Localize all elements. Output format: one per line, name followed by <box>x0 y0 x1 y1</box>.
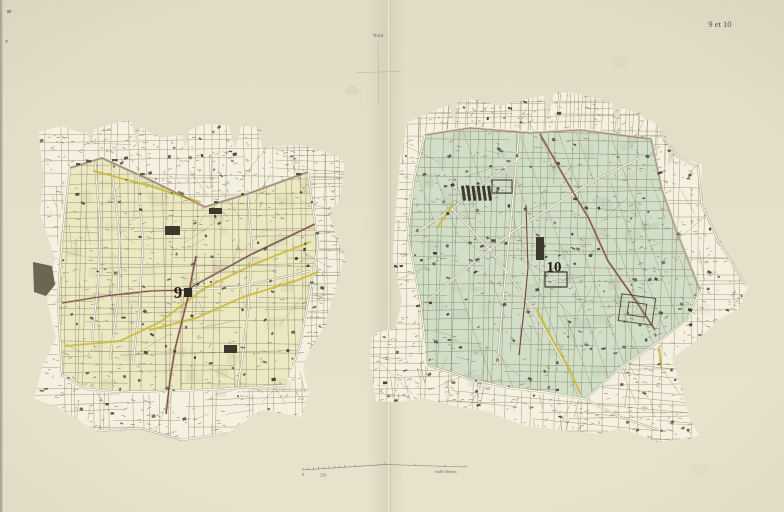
svg-text:mille Mètres: mille Mètres <box>435 469 457 474</box>
svg-text:10: 10 <box>547 260 562 276</box>
svg-text:0: 0 <box>302 472 304 477</box>
svg-text:Nord: Nord <box>373 34 384 39</box>
svg-text:9: 9 <box>174 283 183 302</box>
svg-text:9 et 10: 9 et 10 <box>708 19 731 29</box>
svg-text:250: 250 <box>320 473 326 478</box>
